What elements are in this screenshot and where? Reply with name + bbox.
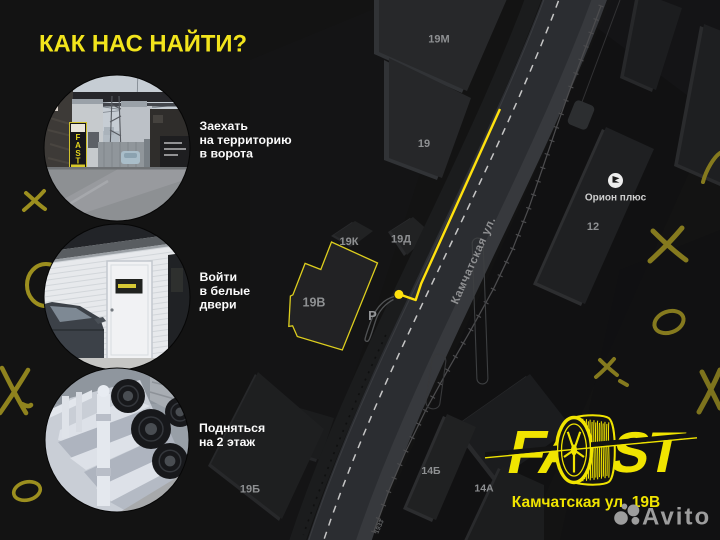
svg-text:14Б: 14Б — [421, 465, 441, 477]
svg-text:двери: двери — [200, 298, 237, 312]
svg-text:19В: 19В — [303, 296, 326, 310]
svg-text:19Б: 19Б — [240, 484, 260, 496]
svg-text:Avito: Avito — [642, 504, 711, 531]
svg-text:Подняться: Подняться — [199, 421, 265, 435]
svg-text:19: 19 — [418, 138, 430, 150]
svg-text:19Д: 19Д — [391, 234, 411, 246]
svg-text:в белые: в белые — [200, 284, 251, 298]
svg-text:Орион плюс: Орион плюс — [585, 193, 647, 204]
svg-text:T: T — [76, 157, 81, 166]
svg-text:19М: 19М — [428, 34, 449, 46]
svg-text:Войти: Войти — [200, 270, 238, 284]
svg-text:в ворота: в ворота — [200, 147, 254, 161]
svg-text:Р: Р — [368, 308, 377, 323]
svg-text:Заехать: Заехать — [200, 119, 249, 133]
svg-text:на территорию: на территорию — [200, 133, 293, 147]
svg-text:12: 12 — [587, 221, 599, 233]
svg-text:19К: 19К — [340, 236, 359, 248]
svg-text:на 2 этаж: на 2 этаж — [199, 435, 255, 449]
svg-text:14А: 14А — [474, 483, 494, 495]
svg-text:КАК НАС НАЙТИ?: КАК НАС НАЙТИ? — [39, 30, 247, 58]
